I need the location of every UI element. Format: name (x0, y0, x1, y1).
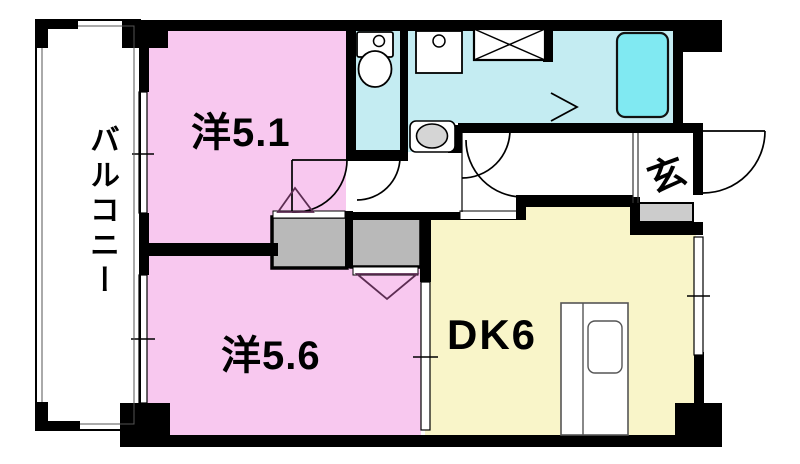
dk-entry-opening (460, 211, 523, 220)
closet-upper (272, 217, 347, 268)
floor-plan: バルコニー 洋5.1 洋5.6 DK6 玄 (0, 0, 800, 464)
bathtub-icon (617, 33, 668, 117)
washbasin-icon (410, 121, 455, 152)
balcony-label: バルコニー (86, 124, 116, 299)
entrance-door-arc (703, 131, 765, 193)
entrance-step (638, 203, 693, 222)
closet-lower (351, 217, 421, 267)
vanity-icon (416, 31, 462, 73)
room-5-6-label: 洋5.6 (221, 323, 321, 381)
kitchen-sink-icon (588, 321, 622, 373)
hallway-floor-east (523, 153, 553, 197)
room-5-1-label: 洋5.1 (191, 100, 291, 158)
toilet-icon (357, 32, 393, 87)
dining-kitchen-label: DK6 (447, 311, 537, 359)
sliding-partition (421, 282, 430, 430)
washing-machine-icon (474, 29, 545, 60)
kitchen-counter-icon (561, 303, 628, 435)
floor-plan-drawing (0, 0, 800, 464)
